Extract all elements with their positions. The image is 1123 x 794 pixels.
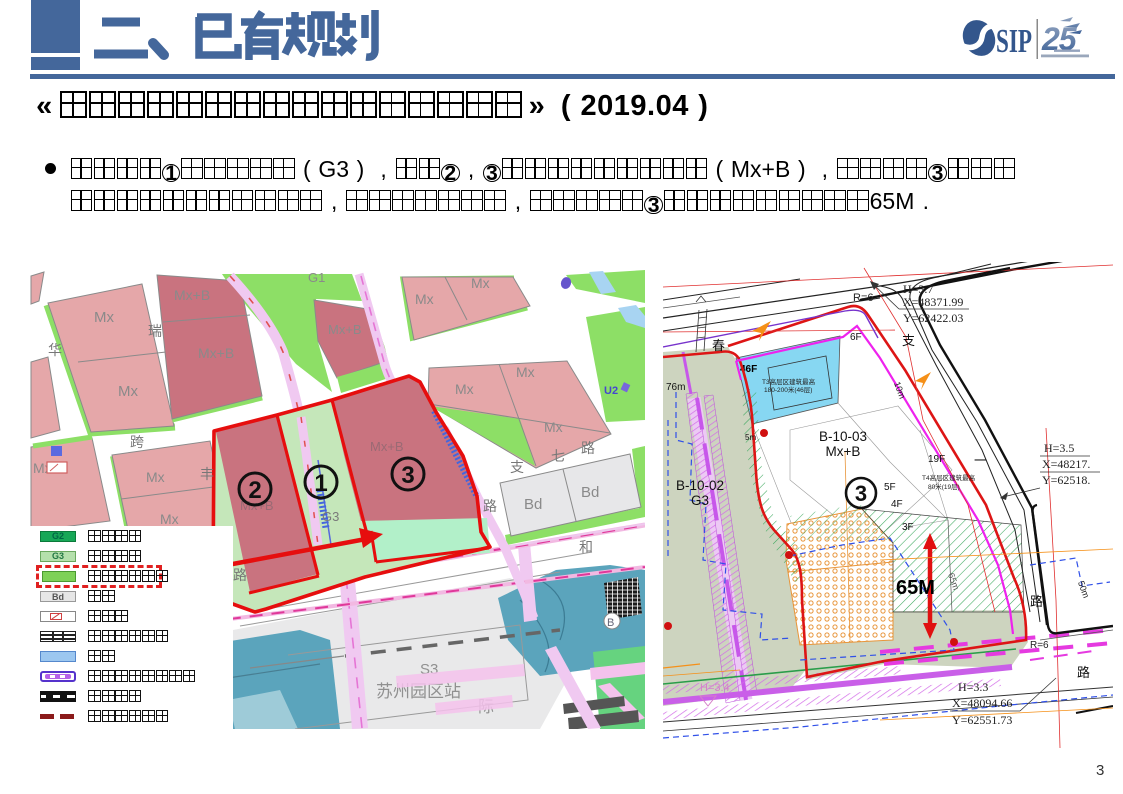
svg-text:路: 路 [233, 567, 247, 583]
svg-text:180-200米(46层): 180-200米(46层) [764, 385, 812, 394]
svg-text:Y=62422.03: Y=62422.03 [903, 311, 963, 325]
svg-text:支: 支 [902, 333, 915, 348]
svg-text:X=48217.: X=48217. [1042, 457, 1090, 471]
svg-text:80米(19层): 80米(19层) [928, 482, 960, 491]
svg-text:Mx: Mx [118, 383, 138, 400]
svg-text:76m: 76m [666, 382, 685, 393]
svg-text:U2: U2 [604, 385, 618, 397]
svg-text:H=3.7: H=3.7 [903, 282, 933, 296]
svg-text:支: 支 [510, 459, 524, 475]
svg-text:Mx: Mx [516, 364, 535, 380]
svg-text:路: 路 [1030, 594, 1043, 609]
svg-text:H=3.5: H=3.5 [1044, 441, 1074, 455]
svg-text:65M: 65M [896, 577, 935, 599]
svg-text:4F: 4F [891, 499, 903, 510]
svg-text:Mx: Mx [544, 419, 563, 435]
svg-text:Mx+B: Mx+B [370, 439, 404, 454]
svg-text:19F: 19F [928, 454, 945, 465]
svg-text:X=48371.99: X=48371.99 [903, 295, 963, 309]
svg-text:路: 路 [483, 498, 497, 514]
svg-text:X=48094.66: X=48094.66 [952, 696, 1012, 710]
svg-text:T3高层区建筑最高: T3高层区建筑最高 [762, 377, 816, 386]
svg-text:1: 1 [314, 470, 327, 497]
svg-text:G1: G1 [308, 270, 325, 285]
svg-text:Mx+B: Mx+B [198, 345, 234, 361]
svg-text:瑞: 瑞 [148, 323, 162, 339]
svg-text:Mx: Mx [146, 469, 165, 485]
svg-text:Bd: Bd [524, 496, 542, 513]
svg-text:2: 2 [248, 477, 261, 504]
svg-text:Mx+B: Mx+B [174, 287, 210, 303]
svg-text:G3: G3 [691, 493, 709, 508]
svg-text:路: 路 [581, 440, 595, 456]
svg-text:丰: 丰 [200, 466, 214, 482]
svg-text:春: 春 [712, 338, 725, 353]
svg-text:3: 3 [855, 481, 867, 506]
svg-text:路: 路 [1077, 665, 1090, 680]
svg-text:Y=62518.: Y=62518. [1042, 473, 1090, 487]
svg-text:6F: 6F [850, 332, 862, 343]
svg-text:H=3.4: H=3.4 [700, 682, 730, 694]
svg-text:5m: 5m [745, 433, 756, 442]
svg-text:Mx: Mx [455, 381, 474, 397]
svg-text:七: 七 [551, 448, 565, 464]
svg-text:R=6: R=6 [853, 292, 874, 304]
svg-text:Mx+B: Mx+B [826, 444, 861, 459]
svg-text:B-10-03: B-10-03 [819, 429, 867, 444]
svg-text:Bd: Bd [581, 484, 599, 501]
svg-text:跨: 跨 [130, 434, 144, 450]
svg-text:3F: 3F [902, 522, 914, 533]
svg-text:3: 3 [401, 462, 414, 489]
svg-text:R=6: R=6 [1030, 640, 1049, 651]
svg-text:G3: G3 [322, 509, 339, 524]
svg-text:T4高层区建筑最高: T4高层区建筑最高 [922, 473, 976, 482]
svg-text:5F: 5F [884, 482, 896, 493]
svg-text:Mx: Mx [415, 291, 434, 307]
svg-text:Mx: Mx [471, 275, 490, 291]
svg-text:华: 华 [48, 342, 62, 358]
svg-text:Mx: Mx [94, 309, 114, 326]
svg-text:H=3.3: H=3.3 [958, 680, 988, 694]
svg-text:SIP: SIP [996, 23, 1032, 60]
svg-text:B-10-02: B-10-02 [676, 478, 724, 493]
svg-text:B: B [607, 617, 614, 629]
svg-text:一: 一 [974, 453, 987, 468]
svg-text:Mx+B: Mx+B [328, 322, 362, 337]
svg-text:Mx: Mx [160, 511, 179, 527]
svg-text:和: 和 [579, 539, 593, 555]
